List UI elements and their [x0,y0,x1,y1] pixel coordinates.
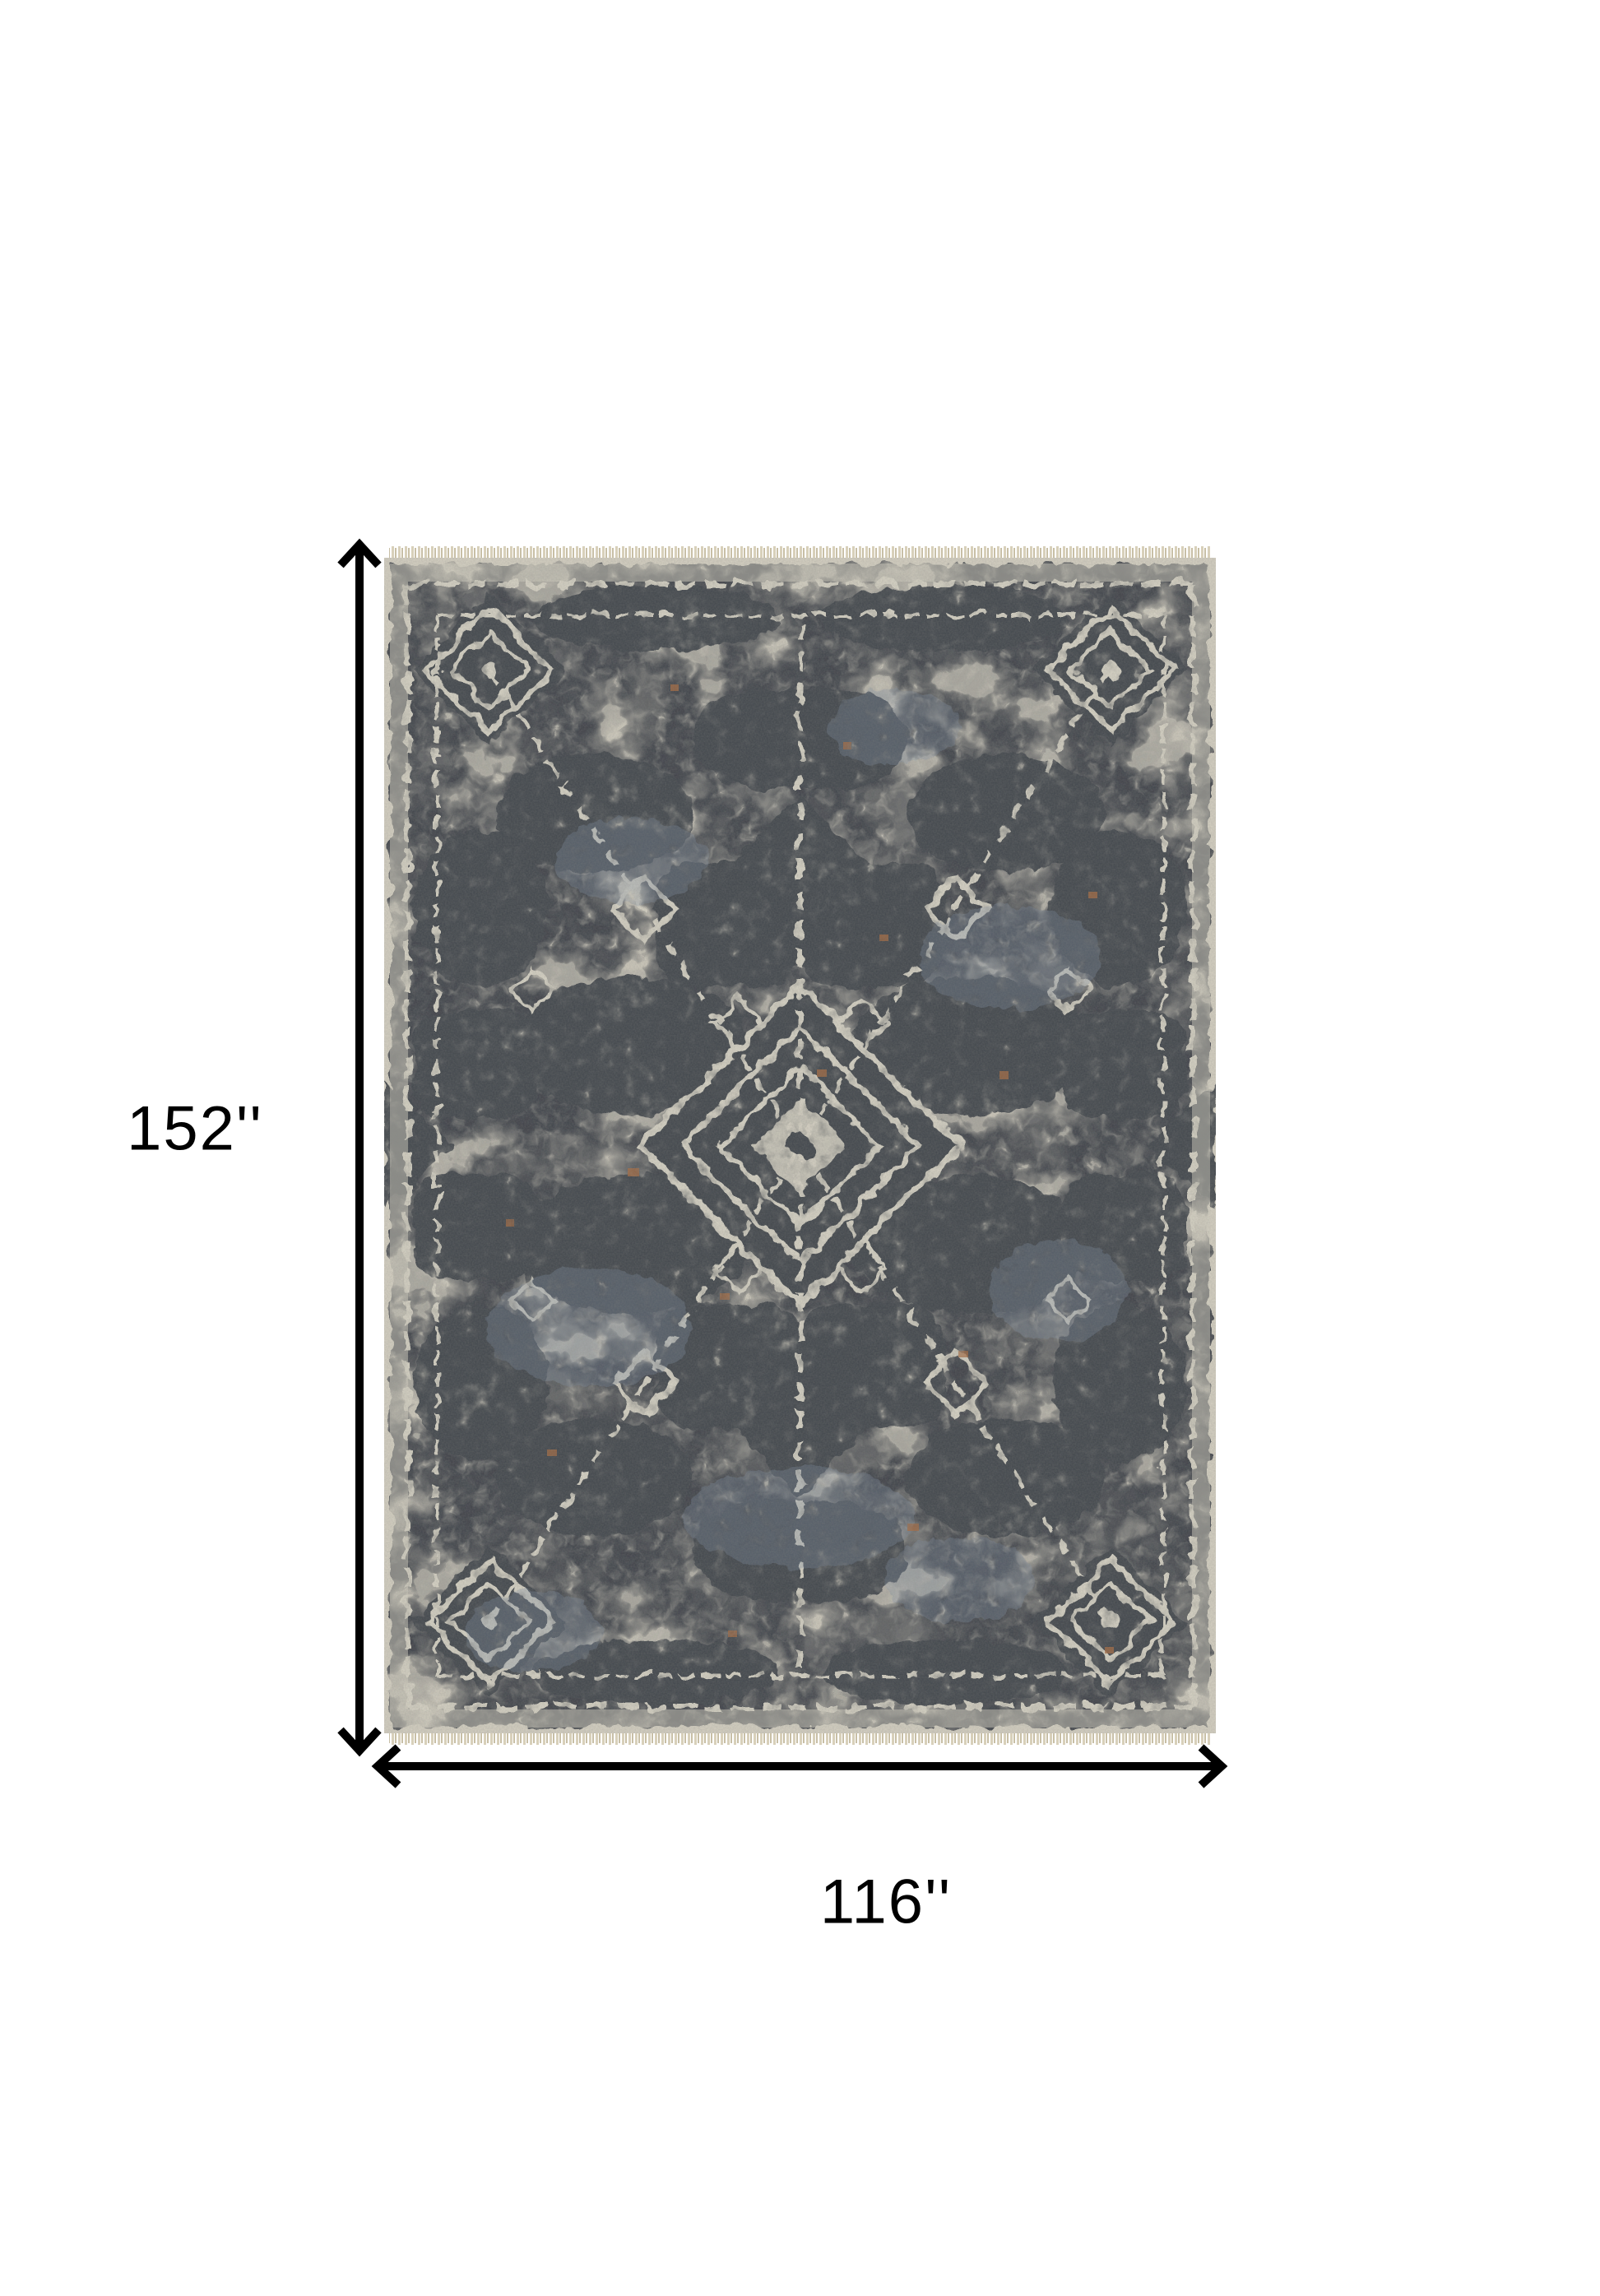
height-dimension-label: 152'' [127,1093,263,1165]
rug-fringe-top [389,546,1211,559]
rug-grain-texture [384,558,1216,1733]
width-dimension-arrow [371,1742,1228,1791]
dimension-diagram: 152'' 116'' [0,0,1600,2296]
rug-image [384,546,1216,1745]
width-dimension-label: 116'' [820,1867,952,1938]
height-dimension-arrow [335,538,384,1757]
